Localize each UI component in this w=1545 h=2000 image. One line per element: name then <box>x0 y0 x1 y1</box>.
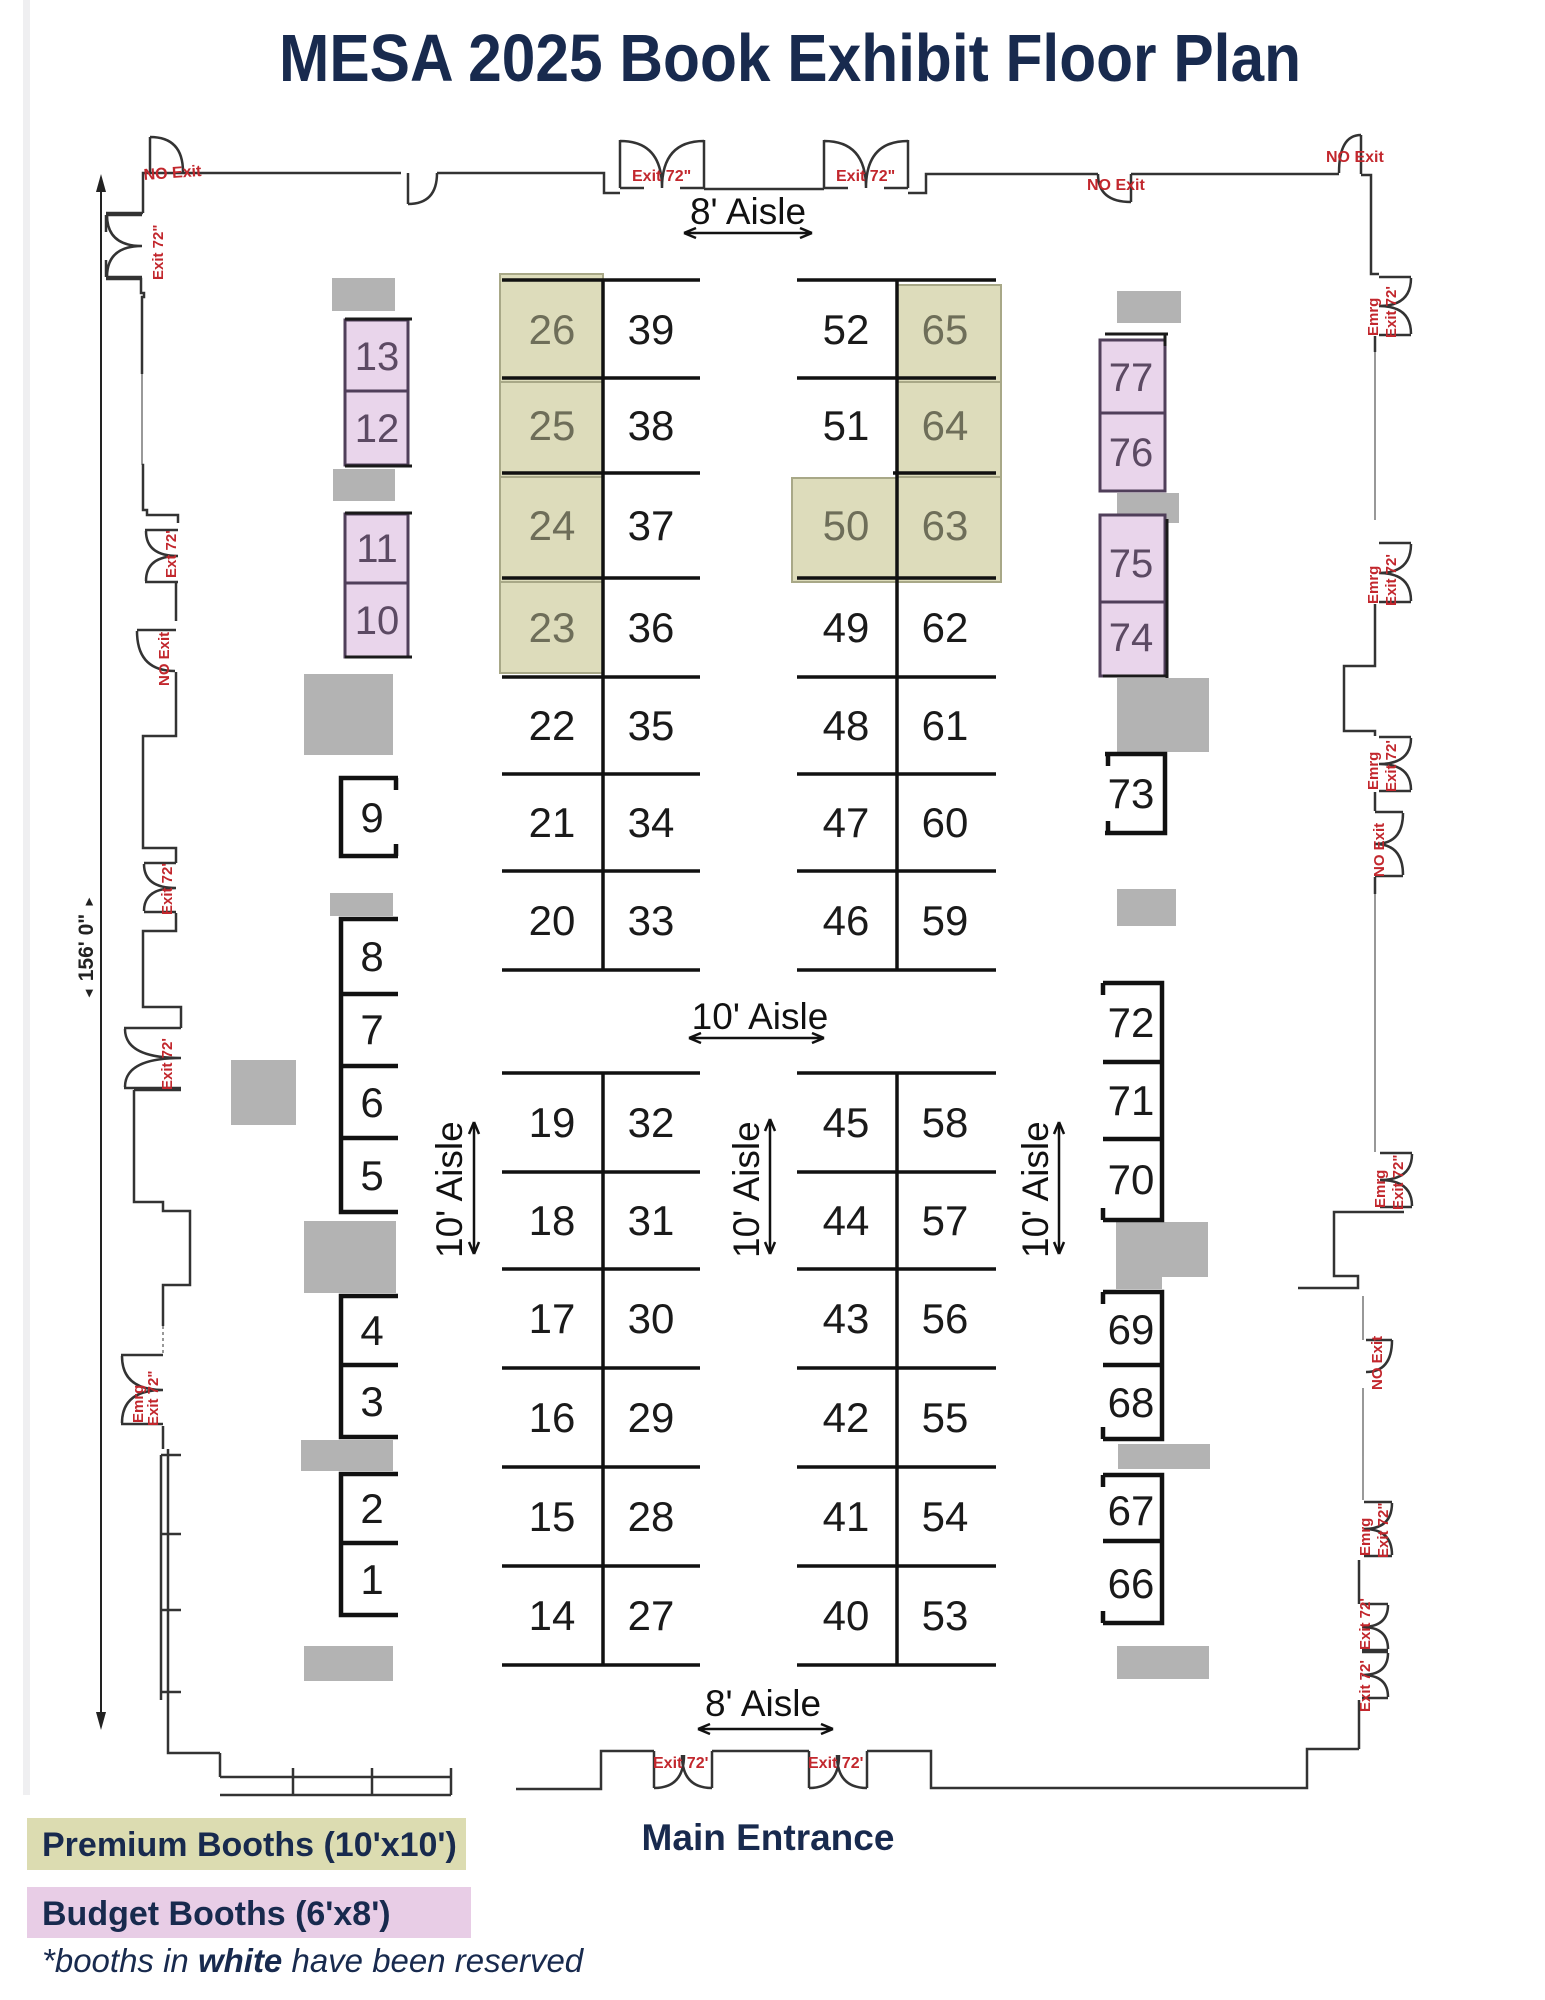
svg-text:Exit 72': Exit 72' <box>159 1038 176 1090</box>
svg-text:64: 64 <box>922 402 969 449</box>
svg-text:4: 4 <box>360 1307 383 1354</box>
svg-text:52: 52 <box>823 306 870 353</box>
svg-text:77: 77 <box>1109 356 1154 400</box>
svg-text:29: 29 <box>628 1394 675 1441</box>
svg-text:Exit 72": Exit 72" <box>632 168 691 185</box>
svg-text:38: 38 <box>628 402 675 449</box>
svg-text:15: 15 <box>529 1493 576 1540</box>
svg-text:8' Aisle: 8' Aisle <box>690 191 806 232</box>
svg-text:73: 73 <box>1108 770 1155 817</box>
svg-text:3: 3 <box>360 1378 383 1425</box>
svg-text:44: 44 <box>823 1197 870 1244</box>
svg-text:61: 61 <box>922 702 969 749</box>
svg-text:58: 58 <box>922 1099 969 1146</box>
svg-text:35: 35 <box>628 702 675 749</box>
svg-text:20: 20 <box>529 897 576 944</box>
svg-text:39: 39 <box>628 306 675 353</box>
svg-text:66: 66 <box>1108 1560 1155 1607</box>
svg-text:◄ 156' 0" ►: ◄ 156' 0" ► <box>75 895 98 1000</box>
svg-text:53: 53 <box>922 1592 969 1639</box>
svg-text:6: 6 <box>360 1079 383 1126</box>
svg-text:46: 46 <box>823 897 870 944</box>
svg-text:72: 72 <box>1108 999 1155 1046</box>
svg-text:34: 34 <box>628 799 675 846</box>
svg-text:NO Exit: NO Exit <box>1369 1336 1386 1390</box>
svg-text:NO Exit: NO Exit <box>1371 823 1388 877</box>
svg-text:Exit 72': Exit 72' <box>1383 286 1400 338</box>
svg-text:Exit 72": Exit 72" <box>145 1371 162 1426</box>
svg-text:57: 57 <box>922 1197 969 1244</box>
svg-text:68: 68 <box>1108 1379 1155 1426</box>
svg-text:Emrg: Emrg <box>1357 1518 1374 1556</box>
svg-text:31: 31 <box>628 1197 675 1244</box>
svg-text:Premium Booths (10'x10'): Premium Booths (10'x10') <box>42 1826 457 1864</box>
svg-text:25: 25 <box>529 402 576 449</box>
svg-text:65: 65 <box>922 306 969 353</box>
svg-text:49: 49 <box>823 604 870 651</box>
svg-text:Budget Booths (6'x8'): Budget Booths (6'x8') <box>42 1895 391 1933</box>
svg-text:Ext 72': Ext 72' <box>163 530 180 578</box>
svg-text:26: 26 <box>529 306 576 353</box>
svg-text:47: 47 <box>823 799 870 846</box>
svg-text:50: 50 <box>823 502 870 549</box>
svg-text:Exit 72': Exit 72' <box>1357 1598 1374 1650</box>
svg-text:37: 37 <box>628 502 675 549</box>
svg-text:36: 36 <box>628 604 675 651</box>
svg-text:*booths in white have been res: *booths in white have been reserved <box>42 1942 585 1979</box>
svg-text:40: 40 <box>823 1592 870 1639</box>
svg-text:16: 16 <box>529 1394 576 1441</box>
svg-text:43: 43 <box>823 1295 870 1342</box>
svg-text:22: 22 <box>529 702 576 749</box>
svg-text:2: 2 <box>360 1485 383 1532</box>
svg-text:5: 5 <box>360 1152 383 1199</box>
svg-text:21: 21 <box>529 799 576 846</box>
svg-text:45: 45 <box>823 1099 870 1146</box>
svg-text:24: 24 <box>529 502 576 549</box>
svg-text:MESA 2025 Book Exhibit Floor P: MESA 2025 Book Exhibit Floor Plan <box>279 21 1301 96</box>
svg-text:10' Aisle: 10' Aisle <box>429 1121 470 1258</box>
svg-text:Exit 72': Exit 72' <box>808 1755 863 1772</box>
svg-text:7: 7 <box>360 1006 383 1053</box>
svg-text:14: 14 <box>529 1592 576 1639</box>
svg-text:23: 23 <box>529 604 576 651</box>
svg-text:63: 63 <box>922 502 969 549</box>
svg-text:NO Exit: NO Exit <box>1087 177 1145 194</box>
svg-text:Exit 72': Exit 72' <box>653 1755 708 1772</box>
svg-text:42: 42 <box>823 1394 870 1441</box>
svg-text:NO Exit: NO Exit <box>156 632 173 686</box>
svg-text:Emrg: Emrg <box>1365 752 1382 790</box>
svg-text:55: 55 <box>922 1394 969 1441</box>
svg-text:13: 13 <box>355 335 400 379</box>
svg-text:59: 59 <box>922 897 969 944</box>
svg-text:Exit 72': Exit 72' <box>159 863 176 915</box>
svg-text:Exit 72": Exit 72" <box>836 168 895 185</box>
svg-text:12: 12 <box>355 407 400 451</box>
svg-text:41: 41 <box>823 1493 870 1540</box>
svg-text:Exit 72': Exit 72' <box>1357 1660 1374 1712</box>
svg-text:54: 54 <box>922 1493 969 1540</box>
svg-text:32: 32 <box>628 1099 675 1146</box>
svg-text:17: 17 <box>529 1295 576 1342</box>
svg-text:74: 74 <box>1109 616 1154 660</box>
svg-text:Exit 72": Exit 72" <box>1390 1155 1407 1210</box>
svg-text:Exit 72': Exit 72' <box>1383 554 1400 606</box>
svg-text:Emrg: Emrg <box>1365 566 1382 604</box>
svg-text:18: 18 <box>529 1197 576 1244</box>
svg-text:33: 33 <box>628 897 675 944</box>
svg-text:10' Aisle: 10' Aisle <box>692 996 829 1037</box>
svg-text:Exit 72': Exit 72' <box>1383 740 1400 792</box>
svg-text:8' Aisle: 8' Aisle <box>705 1683 821 1724</box>
svg-text:60: 60 <box>922 799 969 846</box>
svg-text:9: 9 <box>360 794 383 841</box>
svg-text:62: 62 <box>922 604 969 651</box>
svg-text:Main Entrance: Main Entrance <box>642 1817 895 1858</box>
svg-text:11: 11 <box>356 527 398 571</box>
svg-text:70: 70 <box>1108 1156 1155 1203</box>
svg-text:69: 69 <box>1108 1306 1155 1353</box>
svg-text:10: 10 <box>355 599 400 643</box>
svg-text:Exit 72": Exit 72" <box>150 225 167 280</box>
svg-text:48: 48 <box>823 702 870 749</box>
svg-text:30: 30 <box>628 1295 675 1342</box>
svg-text:71: 71 <box>1108 1077 1155 1124</box>
svg-text:10' Aisle: 10' Aisle <box>1015 1121 1056 1258</box>
svg-text:27: 27 <box>628 1592 675 1639</box>
svg-text:Exit 72": Exit 72" <box>1375 1503 1392 1558</box>
svg-text:75: 75 <box>1109 542 1154 586</box>
svg-text:19: 19 <box>529 1099 576 1146</box>
svg-text:Emrg: Emrg <box>1372 1170 1389 1208</box>
svg-text:67: 67 <box>1108 1487 1155 1534</box>
svg-text:28: 28 <box>628 1493 675 1540</box>
svg-text:NO Exit: NO Exit <box>1326 149 1384 166</box>
svg-text:Emrg: Emrg <box>1365 298 1382 336</box>
svg-text:51: 51 <box>823 402 870 449</box>
svg-text:8: 8 <box>360 933 383 980</box>
svg-text:76: 76 <box>1109 431 1154 475</box>
svg-text:10' Aisle: 10' Aisle <box>726 1121 767 1258</box>
svg-text:56: 56 <box>922 1295 969 1342</box>
svg-text:1: 1 <box>360 1556 383 1603</box>
